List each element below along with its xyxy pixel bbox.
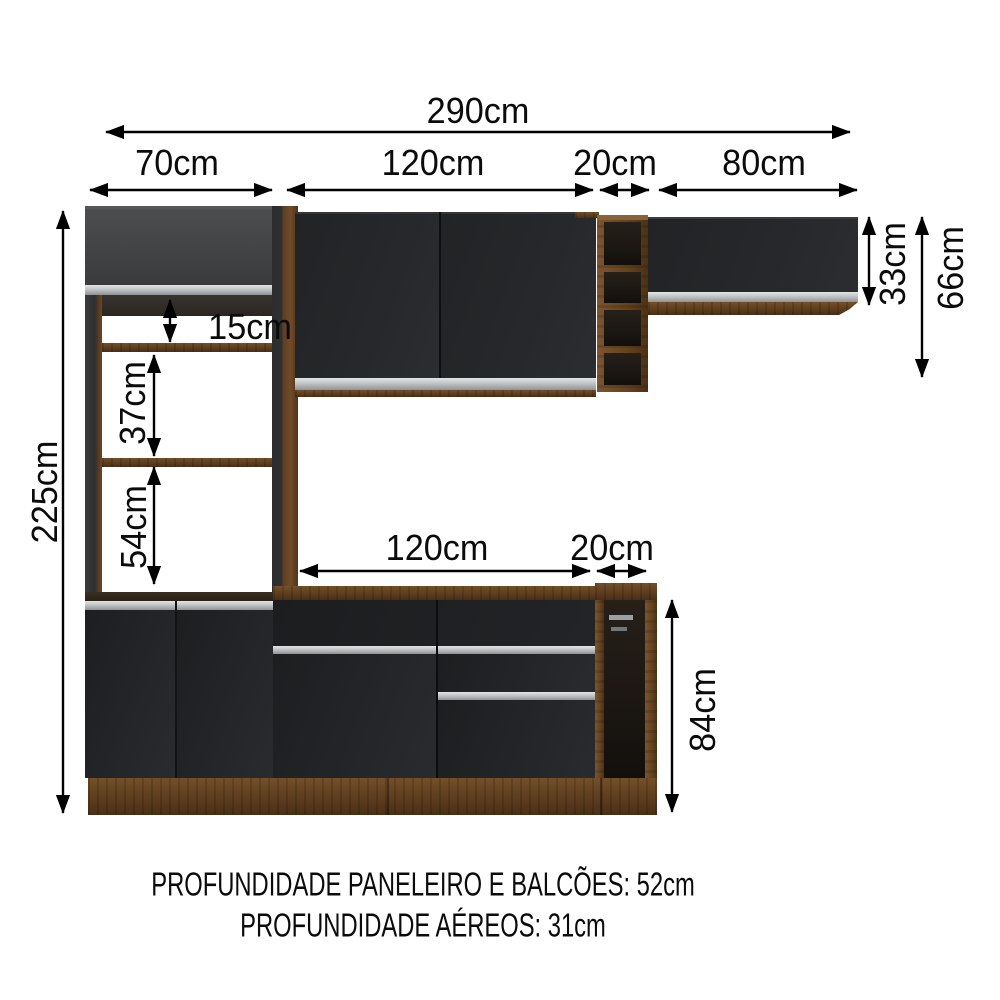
label-shelf-gap-middle: 37cm <box>115 361 151 445</box>
upper-niche-cell-1 <box>604 222 641 265</box>
tower-shelf-lower <box>102 458 272 467</box>
label-upper-total-height: 66cm <box>933 226 969 310</box>
tower-base-door-right <box>177 610 273 778</box>
label-total-height: 225cm <box>27 441 63 544</box>
label-total-width: 290cm <box>427 93 530 129</box>
tower-base-top-edge <box>85 592 273 601</box>
tower-left-wall <box>85 295 102 594</box>
counter-end-unit-hinge-2 <box>611 627 627 631</box>
counter-door-gap <box>436 600 438 778</box>
counter-door-left <box>273 654 436 778</box>
tower-base-door-gap <box>175 601 177 778</box>
upper-niche-cell-4 <box>604 353 641 385</box>
label-upper-cabinet-width: 120cm <box>382 145 485 181</box>
upper-niche-cell-2 <box>604 272 641 303</box>
label-counter-width: 120cm <box>386 530 489 566</box>
tower-base-handle-left <box>85 601 175 610</box>
label-tower-width: 70cm <box>135 145 219 181</box>
label-right-cabinet-height: 33cm <box>875 222 911 306</box>
tower-top-cabinet <box>85 206 272 295</box>
plinth-seam-2 <box>600 778 602 815</box>
plinth <box>88 778 657 815</box>
counter-handle-right-1 <box>438 646 598 654</box>
tower-top-cabinet-handle <box>85 285 272 295</box>
right-cabinet-handle <box>648 292 858 302</box>
counter-end-unit-right-frame <box>645 600 657 778</box>
upper-cabinet-bottom <box>295 390 596 397</box>
counter-drawer-front <box>438 654 598 692</box>
label-shelf-gap-top: 15cm <box>208 309 292 345</box>
label-shelf-gap-bottom: 54cm <box>116 485 152 569</box>
upper-cabinet-door-left <box>295 212 439 378</box>
upper-cabinet-door-right <box>441 212 596 378</box>
upper-niche-cell-3 <box>604 310 641 346</box>
upper-niche-top <box>597 215 648 220</box>
footer-depth-pantry-counters: PROFUNDIDADE PANELEIRO E BALCÕES: 52cm <box>151 868 695 901</box>
label-counter-niche-width: 20cm <box>570 530 654 566</box>
counter-end-unit <box>595 583 657 778</box>
right-cabinet-80 <box>648 215 858 315</box>
upper-top-edge <box>575 212 599 218</box>
upper-cabinet-door-gap <box>439 212 441 390</box>
label-upper-niche-width: 20cm <box>573 145 657 181</box>
tower-base-handle-right <box>177 601 273 610</box>
right-cabinet-bottom <box>648 302 858 315</box>
right-cabinet-door <box>648 217 858 292</box>
counter-handle-left <box>273 646 436 654</box>
counter-end-unit-left-frame <box>595 600 604 778</box>
tower-top-cabinet-door <box>85 206 272 285</box>
counter-door-right <box>438 700 598 778</box>
counter-end-unit-top <box>595 583 657 600</box>
counter-handle-right-2 <box>438 692 598 700</box>
upper-cabinet-120 <box>295 212 596 397</box>
counter-end-unit-hinge <box>609 615 633 620</box>
upper-cabinet-handle <box>295 378 596 390</box>
plinth-seam-1 <box>387 778 389 815</box>
label-right-cabinet-width: 80cm <box>722 145 806 181</box>
counter-120 <box>273 586 598 778</box>
counter-worktop <box>273 586 598 600</box>
kitchen-dimension-diagram: 290cm 70cm 120cm 20cm 80cm 33cm 66cm 225… <box>0 0 1000 1000</box>
tower-base-door-left <box>85 610 175 778</box>
footer-depth-wall-cabinets: PROFUNDIDADE AÉREOS: 31cm <box>240 909 606 942</box>
upper-niche-unit <box>597 215 648 392</box>
label-counter-height: 84cm <box>685 668 721 752</box>
tower-base-cabinet <box>85 592 273 778</box>
